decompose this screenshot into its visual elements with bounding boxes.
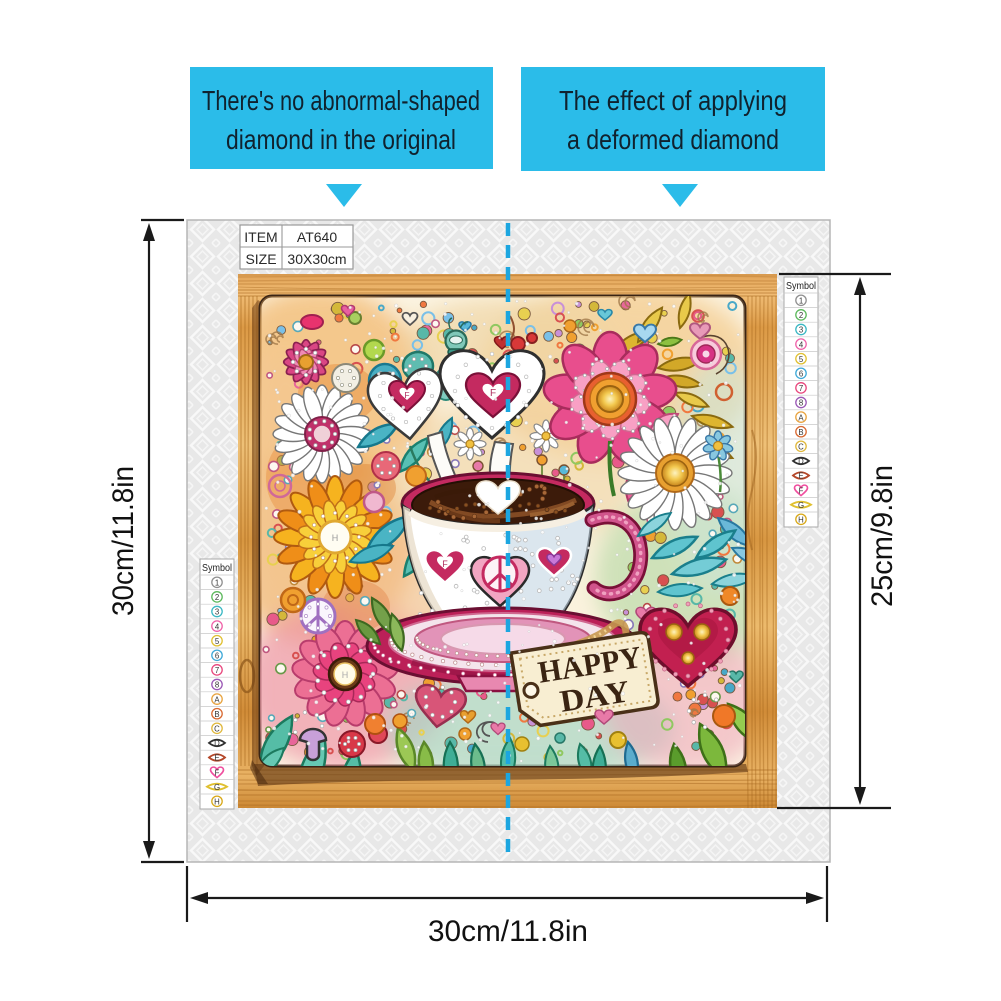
svg-text:SIZE: SIZE (245, 251, 276, 267)
svg-text:6: 6 (799, 370, 803, 379)
svg-text:The effect of applying: The effect of applying (559, 85, 787, 116)
svg-text:7: 7 (215, 666, 219, 675)
svg-text:4: 4 (215, 622, 220, 631)
svg-text:F: F (799, 486, 804, 495)
svg-text:Symbol: Symbol (786, 280, 816, 292)
svg-text:3: 3 (799, 326, 803, 335)
svg-text:C: C (798, 443, 804, 452)
svg-text:ITEM: ITEM (244, 229, 277, 245)
svg-text:H: H (342, 670, 349, 680)
svg-text:B: B (214, 710, 219, 719)
svg-text:F: F (404, 390, 409, 400)
svg-text:F: F (442, 559, 448, 569)
svg-text:G: G (798, 501, 804, 510)
svg-text:G: G (214, 783, 220, 792)
svg-text:F: F (490, 388, 496, 399)
svg-text:2: 2 (799, 311, 803, 320)
svg-text:F: F (215, 768, 220, 777)
svg-text:There's no abnormal-shaped: There's no abnormal-shaped (202, 85, 480, 116)
svg-text:5: 5 (799, 355, 804, 364)
svg-text:4: 4 (799, 340, 804, 349)
svg-text:H: H (332, 533, 339, 543)
svg-text:7: 7 (799, 384, 803, 393)
svg-text:A: A (214, 695, 220, 704)
svg-text:1: 1 (799, 297, 803, 306)
svg-text:25cm/9.8in: 25cm/9.8in (866, 465, 899, 607)
svg-text:6: 6 (215, 652, 219, 661)
svg-text:E: E (798, 472, 803, 481)
svg-text:8: 8 (215, 681, 219, 690)
svg-text:B: B (798, 428, 803, 437)
svg-text:H: H (798, 516, 804, 525)
svg-text:5: 5 (215, 637, 220, 646)
svg-text:H: H (214, 798, 220, 807)
svg-text:diamond in the original: diamond in the original (226, 124, 456, 155)
svg-text:A: A (798, 413, 804, 422)
svg-text:3: 3 (215, 608, 219, 617)
svg-text:D: D (798, 457, 804, 466)
svg-text:8: 8 (799, 399, 803, 408)
svg-text:30cm/11.8in: 30cm/11.8in (107, 466, 140, 616)
svg-text:2: 2 (215, 593, 219, 602)
svg-text:D: D (214, 739, 220, 748)
svg-text:AT640: AT640 (297, 229, 337, 245)
svg-text:E: E (214, 754, 219, 763)
svg-text:a deformed diamond: a deformed diamond (567, 124, 779, 155)
svg-text:1: 1 (215, 579, 219, 588)
svg-text:C: C (214, 725, 220, 734)
svg-text:Symbol: Symbol (202, 562, 232, 574)
svg-text:30X30cm: 30X30cm (287, 251, 346, 267)
svg-text:30cm/11.8in: 30cm/11.8in (428, 915, 588, 948)
